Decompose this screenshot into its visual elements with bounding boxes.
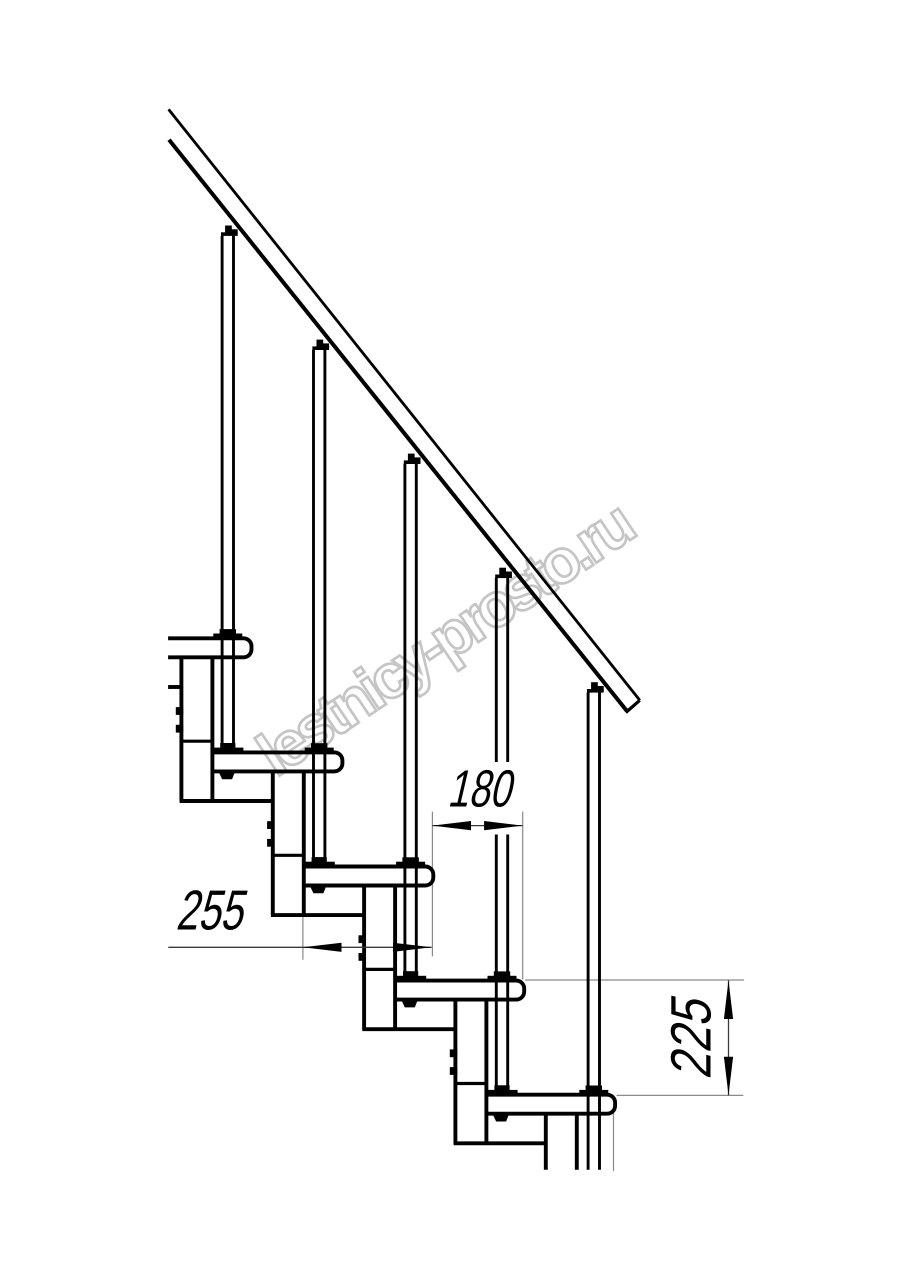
svg-text:225: 225 bbox=[660, 989, 723, 1082]
svg-text:180: 180 bbox=[444, 760, 521, 818]
